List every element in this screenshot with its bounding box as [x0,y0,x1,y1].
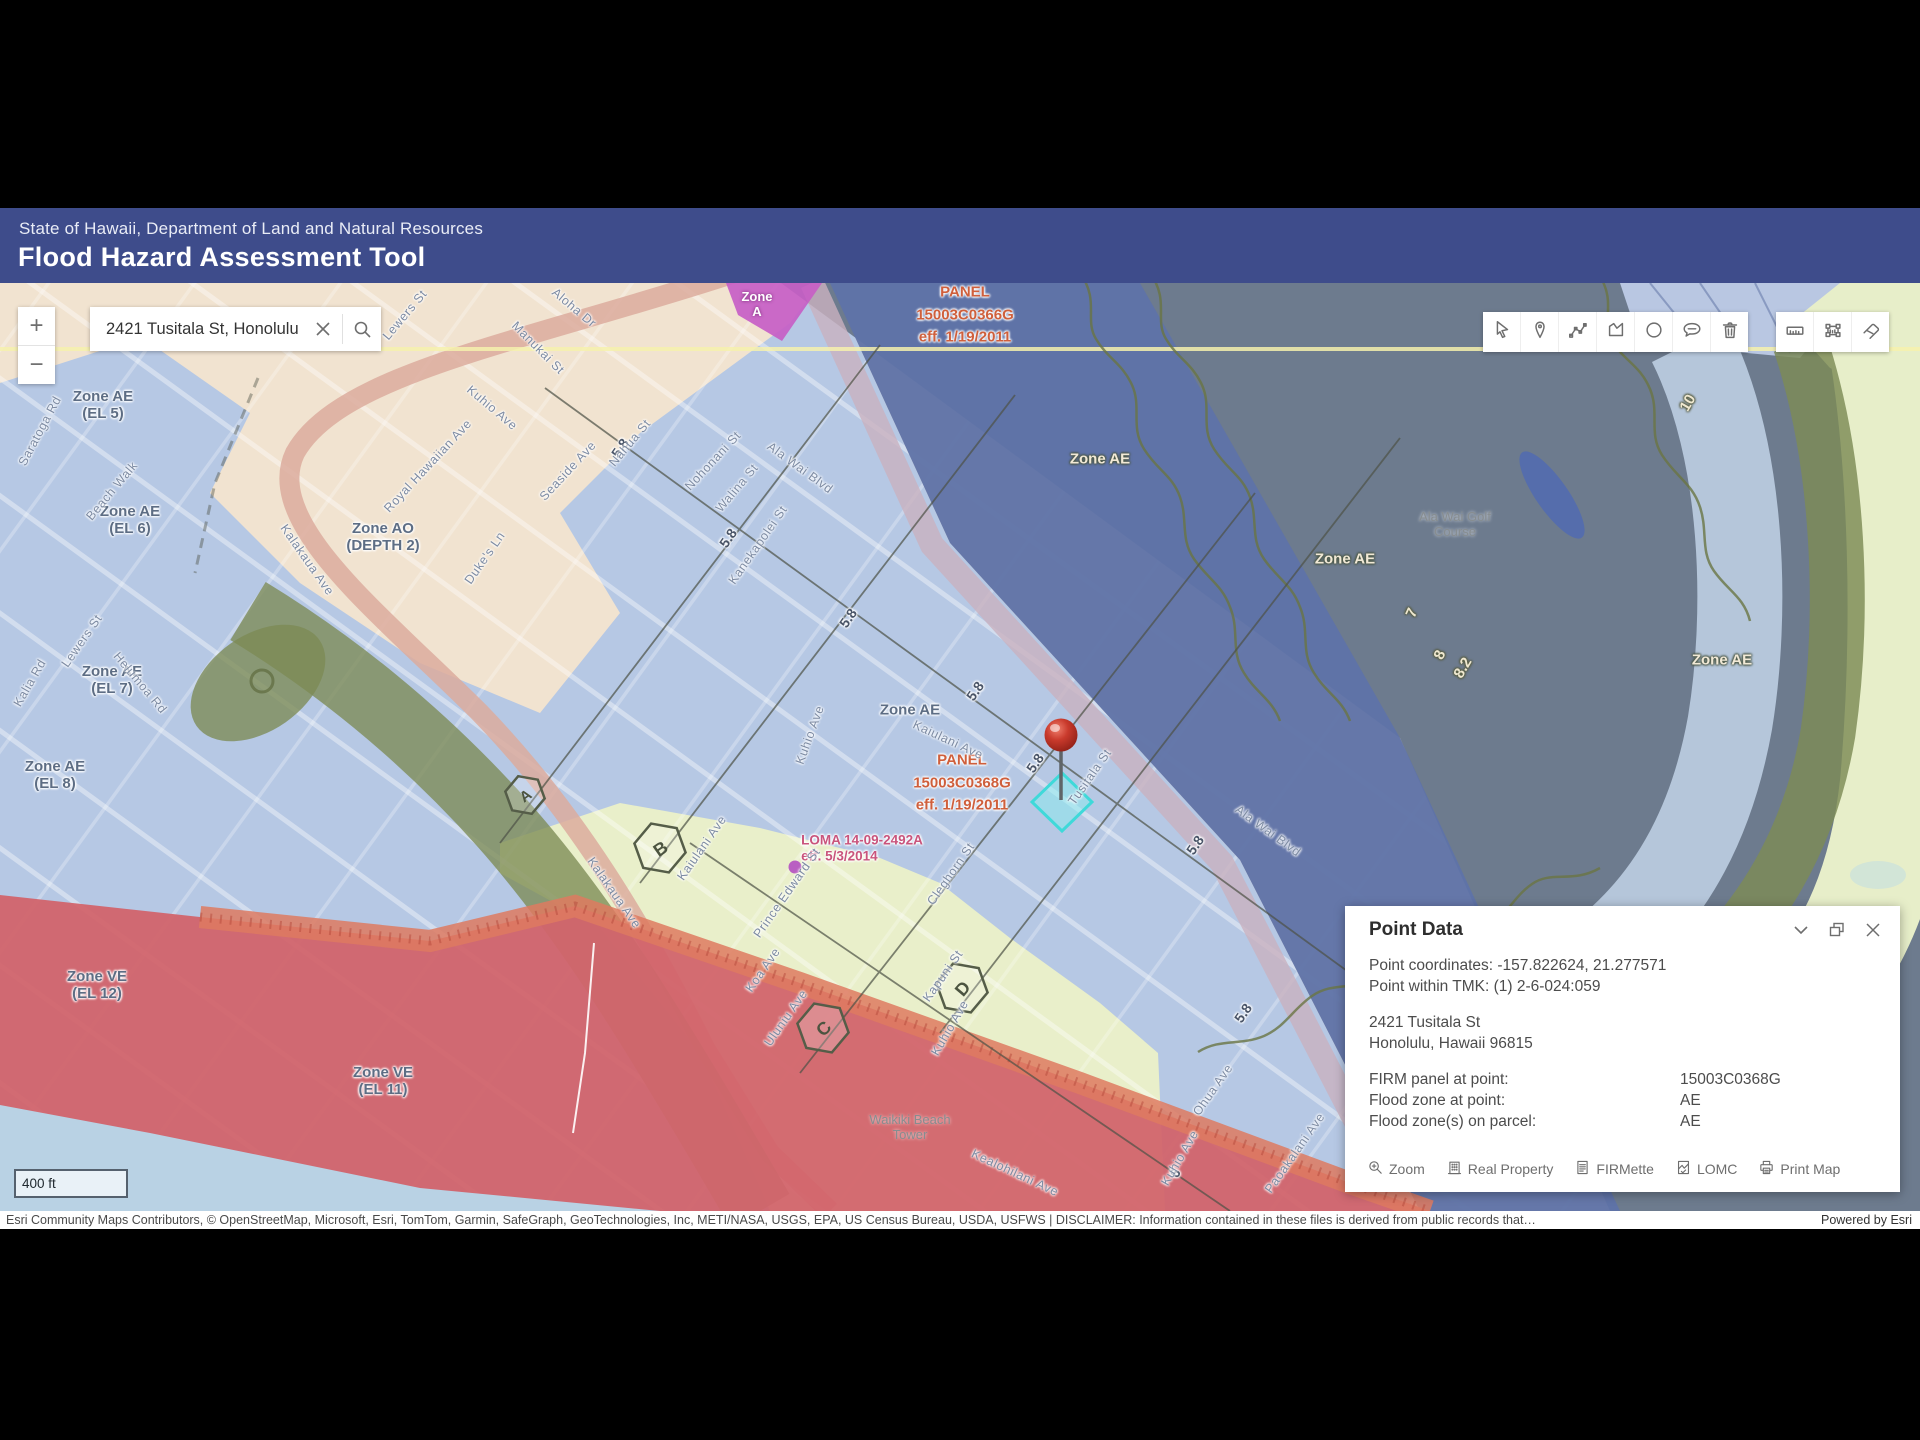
point-tmk: Point within TMK: (1) 2-6-024:059 [1369,976,1876,997]
app-header: State of Hawaii, Department of Land and … [0,208,1920,284]
search-icon [353,320,372,339]
action-label: FIRMette [1596,1161,1654,1177]
flood-hazard-app: State of Hawaii, Department of Land and … [0,208,1920,1229]
tool-trash-button[interactable] [1711,312,1748,352]
action-label: Print Map [1780,1161,1840,1177]
flood-info-label: Flood zone at point: [1369,1090,1680,1111]
chevron-down-icon [1792,921,1810,939]
draw-toolbar [1483,312,1889,352]
agency-name: State of Hawaii, Department of Land and … [19,219,483,239]
clear-search-button[interactable] [304,307,342,351]
zoom-icon [1367,1159,1384,1179]
search-box [90,307,381,351]
action-label: Real Property [1468,1161,1554,1177]
close-icon [1865,922,1881,938]
tool-map-pin-button[interactable] [1521,312,1559,352]
address-line-1: 2421 Tusitala St [1369,1012,1876,1033]
map-canvas[interactable]: A B C D Zone [0,283,1920,1211]
tool-callout-button[interactable] [1673,312,1711,352]
tool-circle-button[interactable] [1635,312,1673,352]
lomc-icon [1675,1159,1692,1179]
measure-area-icon [1822,319,1844,346]
tool-ruler-button[interactable] [1776,312,1814,352]
real-property-button[interactable]: Real Property [1446,1159,1554,1179]
search-input[interactable] [104,319,304,340]
panel-body: Point coordinates: -157.822624, 21.27757… [1369,955,1876,1132]
tool-eraser-button[interactable] [1852,312,1889,352]
flood-info-value: AE [1680,1111,1876,1132]
eraser-icon [1860,319,1882,346]
dock-panel-button[interactable] [1826,919,1848,941]
printer-icon [1758,1159,1775,1179]
search-button[interactable] [343,307,381,351]
firmette-button[interactable]: FIRMette [1574,1159,1654,1179]
flood-info-row: FIRM panel at point:15003C0368G [1369,1069,1876,1090]
tool-polyline-button[interactable] [1559,312,1597,352]
toolbar-group [1483,312,1748,352]
park-pond [1850,861,1906,889]
attribution-sources: Esri Community Maps Contributors, © Open… [6,1213,1805,1227]
scale-bar-label: 400 ft [22,1176,56,1191]
circle-icon [1643,319,1665,346]
lomc-button[interactable]: LOMC [1675,1159,1737,1179]
zoom-out-button[interactable]: − [18,345,55,384]
close-panel-button[interactable] [1862,919,1884,941]
flood-info-row: Flood zone at point:AE [1369,1090,1876,1111]
flood-info-label: FIRM panel at point: [1369,1069,1680,1090]
polygon-icon [1605,319,1627,346]
flood-info-value: AE [1680,1090,1876,1111]
panel-actions: ZoomReal PropertyFIRMetteLOMCPrint Map [1367,1159,1840,1179]
dock-icon [1828,921,1846,939]
callout-icon [1681,319,1703,346]
flood-info-label: Flood zone(s) on parcel: [1369,1111,1680,1132]
collapse-panel-button[interactable] [1790,919,1812,941]
flood-info-rows: FIRM panel at point:15003C0368GFlood zon… [1369,1069,1876,1132]
tool-cursor-button[interactable] [1483,312,1521,352]
toolbar-group [1776,312,1889,352]
tool-polygon-button[interactable] [1597,312,1635,352]
action-label: Zoom [1389,1161,1425,1177]
ruler-icon [1784,319,1806,346]
scale-bar: 400 ft [14,1169,128,1198]
polyline-icon [1567,319,1589,346]
powered-by-esri[interactable]: Powered by Esri [1821,1213,1912,1227]
page-title: Flood Hazard Assessment Tool [18,242,425,273]
action-label: LOMC [1697,1161,1737,1177]
map-pin-icon [1529,319,1551,346]
close-icon [315,321,331,337]
attribution-bar: Esri Community Maps Contributors, © Open… [0,1211,1920,1229]
point-data-panel: Point Data [1345,906,1900,1192]
tool-measure-area-button[interactable] [1814,312,1852,352]
loma-point [789,861,802,874]
address-line-2: Honolulu, Hawaii 96815 [1369,1033,1876,1054]
panel-title: Point Data [1369,919,1463,941]
trash-icon [1719,319,1741,346]
flood-info-row: Flood zone(s) on parcel:AE [1369,1111,1876,1132]
building-icon [1446,1159,1463,1179]
cursor-icon [1491,319,1513,346]
flood-info-value: 15003C0368G [1680,1069,1876,1090]
point-coordinates: Point coordinates: -157.822624, 21.27757… [1369,955,1876,976]
document-icon [1574,1159,1591,1179]
zoom-controls: + − [18,307,55,384]
zoom-in-button[interactable]: + [18,307,55,345]
zoom-button[interactable]: Zoom [1367,1159,1425,1179]
screenshot-stage: State of Hawaii, Department of Land and … [0,0,1920,1440]
print-map-button[interactable]: Print Map [1758,1159,1840,1179]
